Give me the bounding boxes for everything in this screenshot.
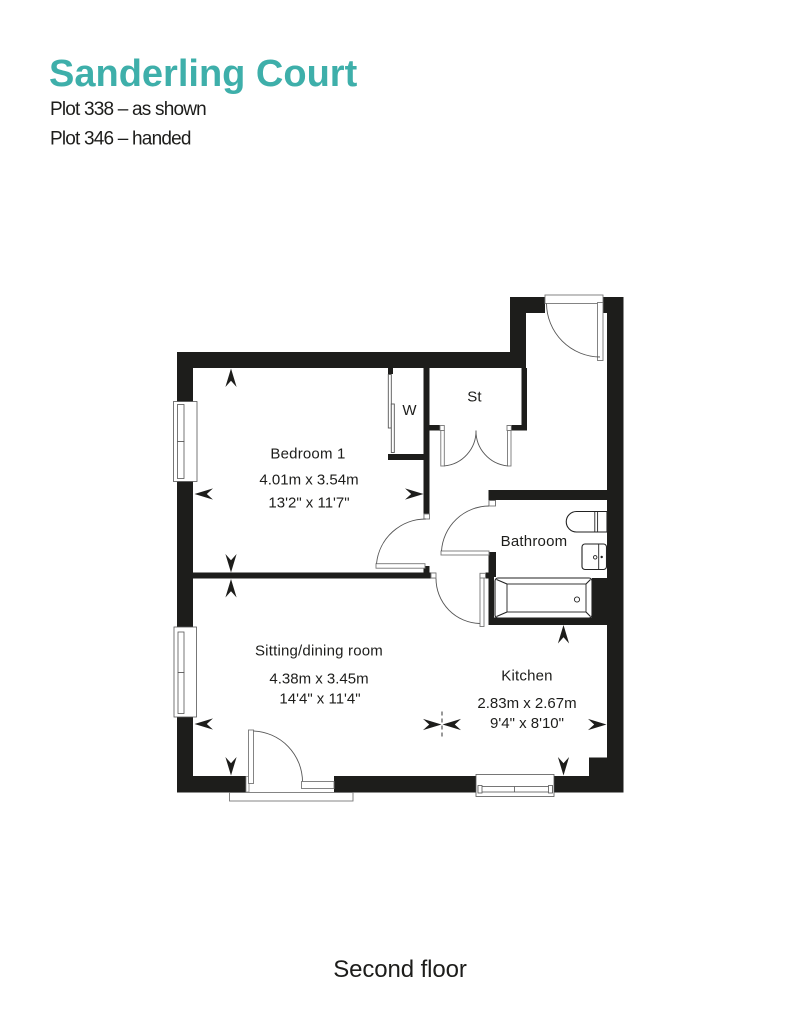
svg-text:Plot 346 – handed: Plot 346 – handed: [50, 129, 191, 150]
svg-text:Sitting/dining room: Sitting/dining room: [255, 643, 383, 660]
svg-text:W: W: [402, 402, 417, 419]
svg-text:Second floor: Second floor: [333, 956, 467, 983]
svg-text:Kitchen: Kitchen: [501, 668, 552, 685]
svg-text:Bedroom 1: Bedroom 1: [270, 446, 345, 463]
svg-text:4.01m x 3.54m: 4.01m x 3.54m: [259, 472, 358, 489]
svg-text:14'4" x 11'4": 14'4" x 11'4": [279, 691, 360, 708]
svg-text:Sanderling Court: Sanderling Court: [49, 53, 358, 95]
svg-text:2.83m x 2.67m: 2.83m x 2.67m: [477, 695, 576, 712]
svg-text:4.38m x 3.45m: 4.38m x 3.45m: [269, 671, 368, 688]
svg-text:Plot 338 – as shown: Plot 338 – as shown: [50, 99, 206, 120]
svg-text:9'4" x 8'10": 9'4" x 8'10": [490, 715, 564, 732]
svg-text:13'2" x 11'7": 13'2" x 11'7": [268, 495, 349, 512]
svg-text:Bathroom: Bathroom: [501, 533, 568, 550]
svg-text:St: St: [467, 389, 482, 406]
